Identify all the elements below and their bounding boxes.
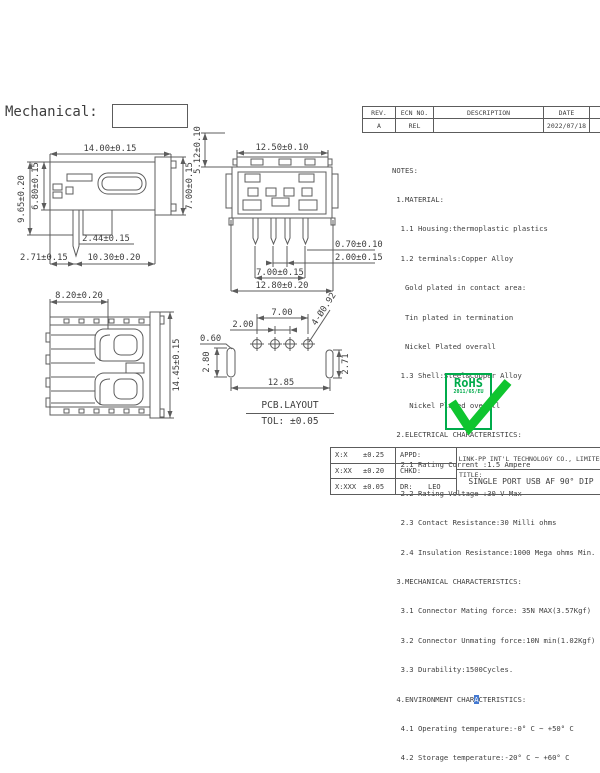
dim-pcb-total-width: 12.85 xyxy=(268,378,294,388)
approval-value: LEO xyxy=(428,483,441,491)
section-title: Mechanical: xyxy=(5,104,98,120)
tolerance-label: X:X xyxy=(335,451,363,459)
dim-front-width-top: 12.50±0.10 xyxy=(256,143,309,153)
note-line: 2.3 Contact Resistance:30 Milli ohms xyxy=(392,518,595,528)
env-text-pre: 4.ENVIRONMENT CHAR xyxy=(392,695,474,704)
note-line: 3.MECHANICAL CHARACTERISTICS: xyxy=(392,577,595,587)
dim-side-depth: 10.30±0.20 xyxy=(88,253,141,263)
top-view-outline xyxy=(46,312,164,418)
note-line: 1.2 terminals:Copper Alloy xyxy=(392,254,595,264)
dim-pcb-slot-width: 0.60 xyxy=(200,334,221,344)
dim-side-height-outer: 9.65±0.20 xyxy=(17,175,27,223)
tolerance-label: X:XXX xyxy=(335,483,363,491)
company-name: LINK-PP INT'L TECHNOLOGY CO., LIMITED xyxy=(457,448,600,470)
drawing-title: SINGLE PORT USB AF 90° DIP xyxy=(457,477,600,486)
note-line: NOTES: xyxy=(392,166,595,176)
note-line: 4.2 Storage temperature:-20° C ~ +60° C xyxy=(392,753,595,763)
note-line: 2.4 Insulation Resistance:1000 Mega ohms… xyxy=(392,548,595,558)
side-view-arrows xyxy=(28,152,186,267)
dim-pcb-hole-note: 4-Ø0.92 xyxy=(309,291,338,328)
dim-front-pin-pitch: 2.00±0.15 xyxy=(335,253,383,263)
rev-header-date: DATE xyxy=(543,107,589,119)
rev-header-ecn: ECN NO. xyxy=(395,107,433,119)
tolerance-row: X:XX±0.20 xyxy=(331,464,395,480)
dim-top-width: 14.45±0.15 xyxy=(172,339,182,392)
pcb-caption-title: PCB.LAYOUT xyxy=(246,400,334,414)
rohs-logo: RoHS 2011/65/EU xyxy=(443,369,515,437)
dim-side-pin-width: 2.44±0.15 xyxy=(82,234,130,244)
tolerance-row: X:XXX±0.05 xyxy=(331,479,395,494)
approval-label: DR: xyxy=(400,483,428,491)
rev-header-desc: DESCRIPTION xyxy=(433,107,543,119)
note-line: Nickel Plated overall xyxy=(392,342,595,352)
note-line: 3.1 Connector Mating force: 35N MAX(3.57… xyxy=(392,606,595,616)
check-icon xyxy=(443,369,515,435)
side-view-dim-lines xyxy=(27,154,186,264)
revision-table: REV. ECN NO. DESCRIPTION DATE APPD A REL… xyxy=(362,106,600,133)
note-line-environment: 4.ENVIRONMENT CHARACTERISTICS: xyxy=(392,695,595,705)
front-view-drawing: 12.50±0.10 5.12±0.10 0.70±0.10 2.00±0.15… xyxy=(195,110,395,302)
rev-cell-date: 2022/07/18 xyxy=(543,119,589,132)
front-view-outline xyxy=(226,157,338,244)
rev-header-appd: APPD xyxy=(589,107,600,119)
dim-side-width-top: 14.00±0.15 xyxy=(84,144,137,154)
dim-pcb-hole-span: 7.00 xyxy=(271,308,292,318)
tolerance-value: ±0.25 xyxy=(363,451,384,459)
title-main: LINK-PP INT'L TECHNOLOGY CO., LIMITED TI… xyxy=(457,448,600,494)
top-view-drawing: 8.20±0.20 14.45±0.15 xyxy=(20,285,200,435)
note-line: 4.1 Operating temperature:-0° C ~ +50° C xyxy=(392,724,595,734)
dim-side-pin-offset: 2.71±0.15 xyxy=(20,253,68,263)
dim-front-height-left: 5.12±0.10 xyxy=(193,126,203,174)
pcb-caption-tolerance: TOL: ±0.05 xyxy=(246,414,334,427)
note-line: 1.MATERIAL: xyxy=(392,195,595,205)
dim-front-pin-span: 7.00±0.15 xyxy=(256,268,304,278)
env-text-post: CTERISTICS: xyxy=(479,695,527,704)
dim-pcb-right-slot-height: 2.71 xyxy=(341,353,351,374)
dim-front-pin-width: 0.70±0.10 xyxy=(335,240,383,250)
approval-label: CHKD: xyxy=(400,467,428,475)
approval-column: APPD: CHKD: DR:LEO xyxy=(396,448,457,494)
rev-cell-desc xyxy=(433,119,543,132)
note-line: 3.2 Connector Unmating force:10N min(1.0… xyxy=(392,636,595,646)
dim-side-height-inner: 6.80±0.15 xyxy=(31,162,41,210)
tolerance-label: X:XX xyxy=(335,467,363,475)
tolerance-column: X:X±0.25 X:XX±0.20 X:XXX±0.05 xyxy=(331,448,396,494)
tolerance-value: ±0.05 xyxy=(363,483,384,491)
approval-row: APPD: xyxy=(396,448,456,464)
title-cell: TITLE: SINGLE PORT USB AF 90° DIP xyxy=(457,470,600,494)
tolerance-value: ±0.20 xyxy=(363,467,384,475)
tolerance-row: X:X±0.25 xyxy=(331,448,395,464)
dim-pcb-slot-height: 2.80 xyxy=(202,351,212,372)
approval-row: DR:LEO xyxy=(396,479,456,494)
approval-label: APPD: xyxy=(400,451,428,459)
dim-pcb-hole-pitch: 2.00 xyxy=(232,320,253,330)
drawing-sheet: { "page": { "section_label": "Mechanical… xyxy=(0,0,600,600)
empty-frame-box xyxy=(112,104,188,128)
pcb-holes xyxy=(227,337,333,378)
dim-top-depth: 8.20±0.20 xyxy=(55,291,103,301)
pcb-caption: PCB.LAYOUT TOL: ±0.05 xyxy=(246,400,334,427)
note-line: 3.3 Durability:1500Cycles. xyxy=(392,665,595,675)
side-view-drawing: 14.00±0.15 9.65±0.20 6.80±0.15 7.00±0.15… xyxy=(0,140,200,292)
note-line: Tin plated in termination xyxy=(392,313,595,323)
note-line: Gold plated in contact area: xyxy=(392,283,595,293)
approval-row: CHKD: xyxy=(396,464,456,480)
title-block: X:X±0.25 X:XX±0.20 X:XXX±0.05 APPD: CHKD… xyxy=(330,447,600,495)
note-line: 1.1 Housing:thermoplastic plastics xyxy=(392,224,595,234)
rev-cell-ecn: REL xyxy=(395,119,433,132)
rev-cell-appd xyxy=(589,119,600,132)
pcb-layout-drawing: 7.00 2.00 4-Ø0.92 0.60 2.80 2.71 12.85 xyxy=(190,290,360,402)
